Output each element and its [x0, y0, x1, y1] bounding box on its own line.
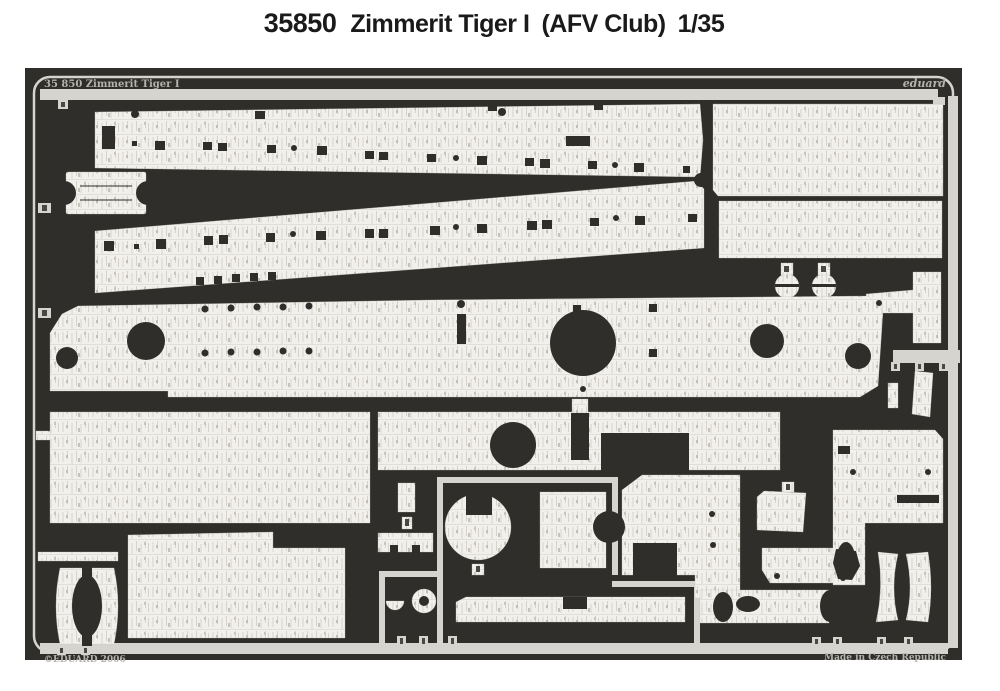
pe-part-trapezoid-plate	[757, 491, 806, 532]
pe-part-rear-plate-upper	[713, 104, 943, 196]
pe-part-small-wedge	[912, 371, 933, 417]
pe-part-curved-bracket-right	[906, 552, 931, 622]
pe-part-notched-bar	[378, 533, 433, 552]
pe-part-thin-strip-bottom-left	[38, 552, 118, 561]
pe-part-small-bar	[888, 383, 898, 408]
made-in-label: Made in Czech Republic	[824, 653, 946, 663]
photo-etch-fret-scan: 35 850 Zimmerit Tiger I eduard ©EDUARD 2…	[0, 0, 1000, 691]
fret-corner-label: 35 850 Zimmerit Tiger I	[44, 79, 180, 90]
eduard-logo: eduard	[903, 77, 947, 90]
pe-part-rear-plate-lower	[719, 201, 942, 258]
pe-part-small-vertical-plate	[398, 483, 415, 512]
pe-part-hull-rear-panel	[50, 412, 370, 523]
pe-part-spool-bracket	[66, 172, 146, 214]
pe-part-bow-plate	[128, 532, 345, 638]
product-scan-page: 35850Zimmerit Tiger I(AFV Club)1/35	[0, 0, 1000, 691]
pe-part-connector-tab	[572, 399, 588, 412]
pe-part-hull-strip-top	[95, 104, 703, 177]
copyright-label: ©EDUARD 2006	[44, 655, 126, 665]
